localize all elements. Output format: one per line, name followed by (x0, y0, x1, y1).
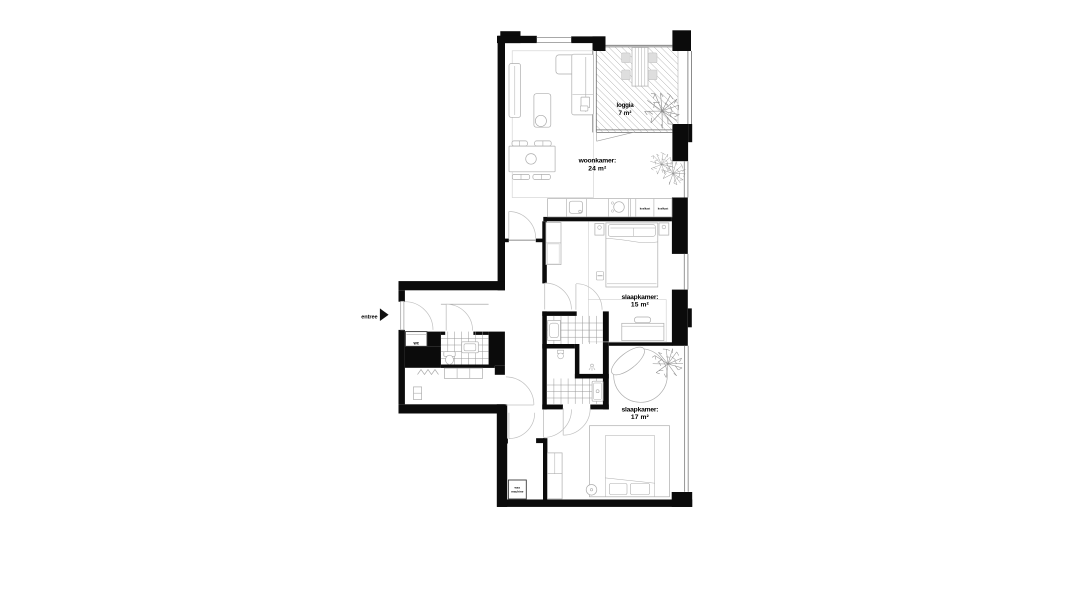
svg-text:koelkast: koelkast (658, 207, 669, 211)
svg-text:slaapkamer:: slaapkamer: (621, 406, 658, 413)
svg-text:15 m²: 15 m² (631, 302, 650, 309)
svg-text:17 m²: 17 m² (631, 414, 650, 421)
svg-text:entree: entree (361, 314, 377, 320)
svg-text:slaapkamer:: slaapkamer: (621, 294, 658, 301)
svg-text:koelkast: koelkast (640, 207, 651, 211)
svg-text:woonkamer:: woonkamer: (578, 158, 616, 165)
svg-text:24 m²: 24 m² (588, 165, 607, 172)
svg-text:7 m²: 7 m² (618, 110, 631, 117)
svg-text:wc: wc (413, 341, 420, 346)
svg-text:machine: machine (511, 490, 524, 494)
svg-text:loggia: loggia (616, 102, 634, 109)
